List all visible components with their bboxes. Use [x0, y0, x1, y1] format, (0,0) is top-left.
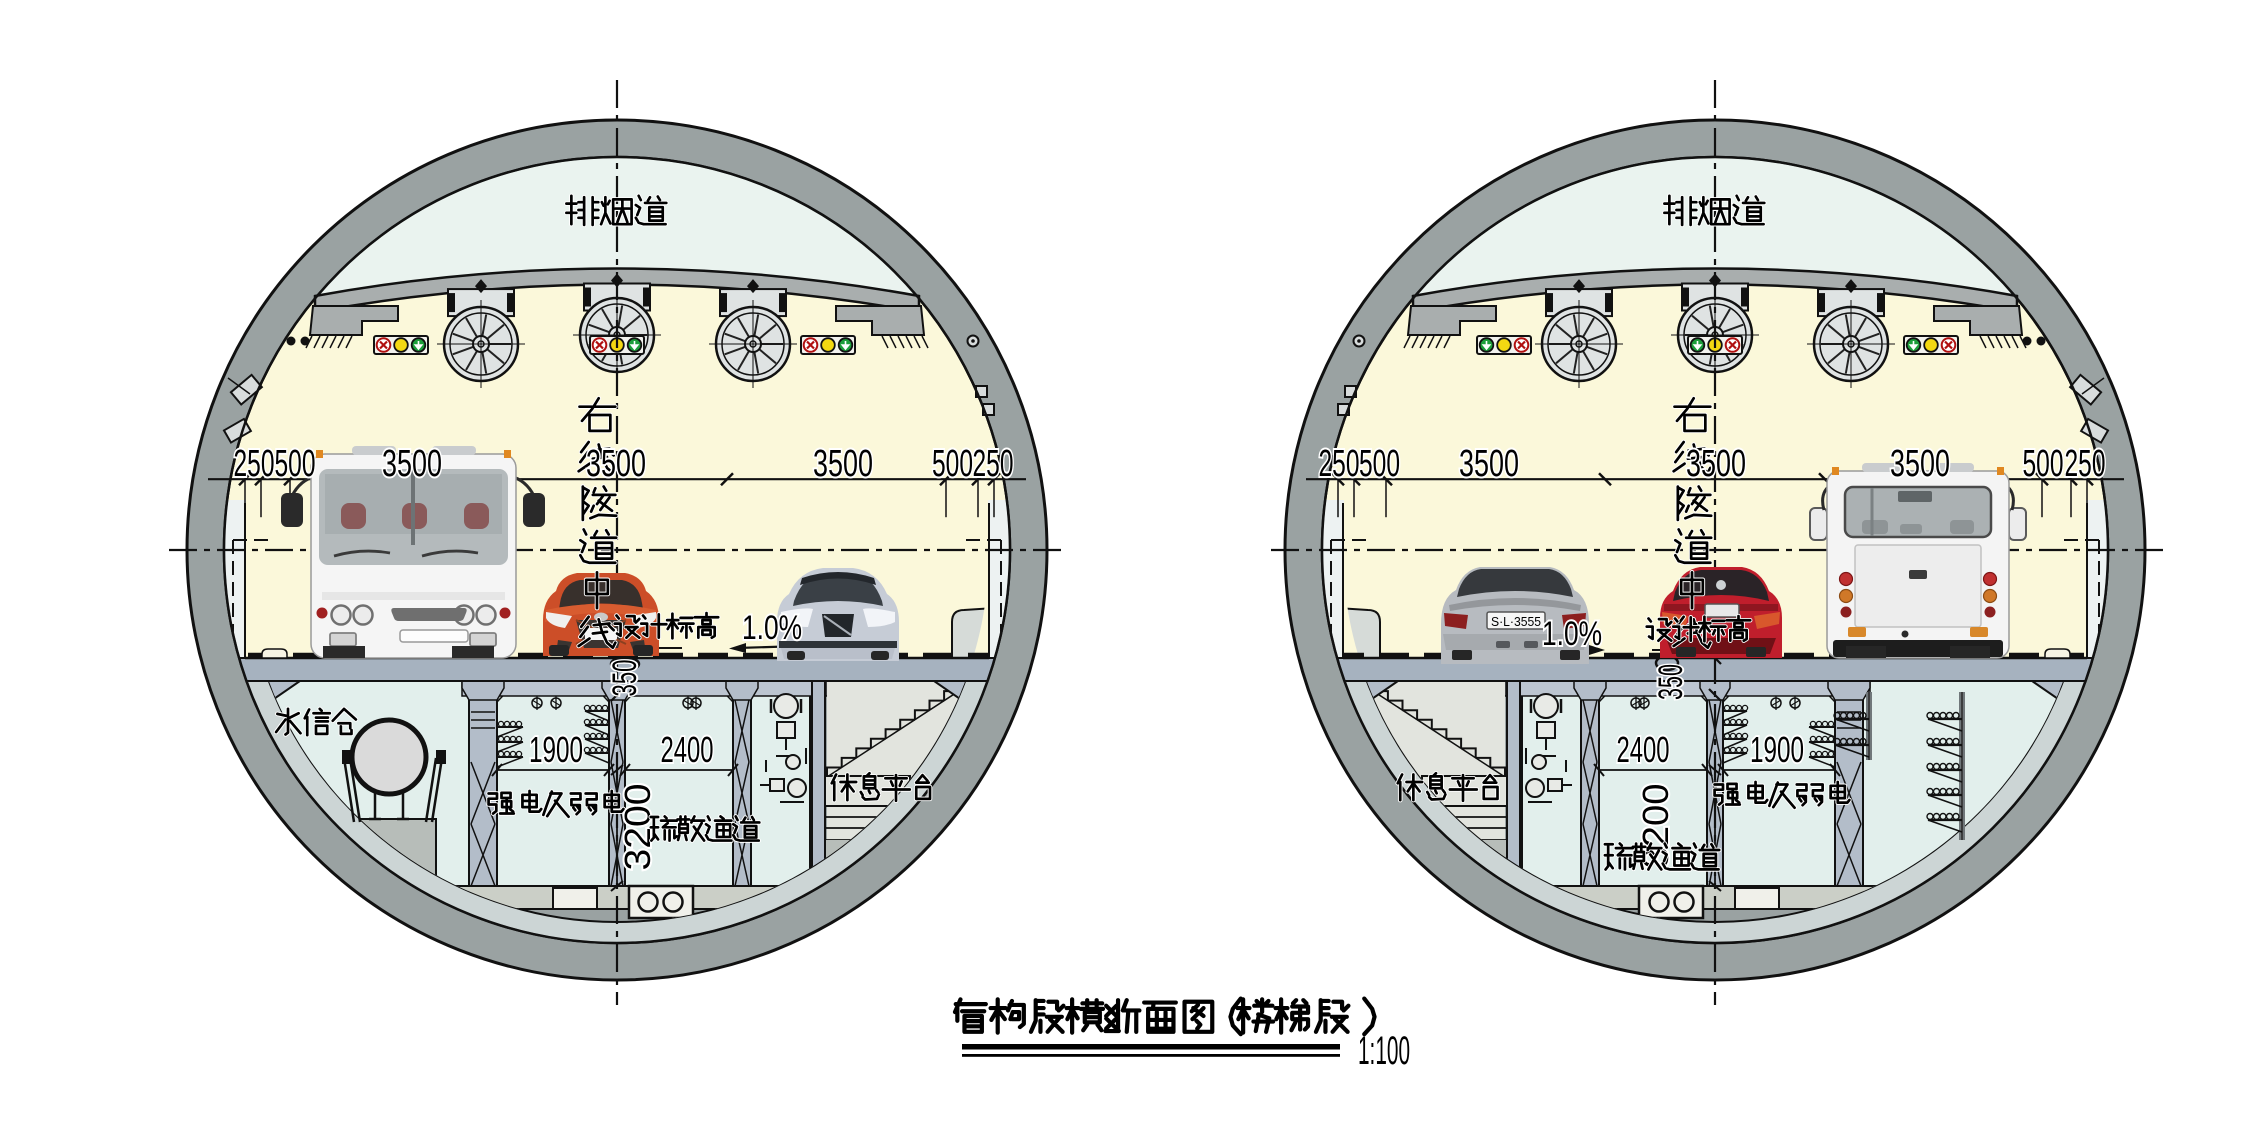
- svg-text:1:100: 1:100: [1358, 1029, 1410, 1073]
- svg-text:S·L·3555: S·L·3555: [1491, 614, 1541, 629]
- svg-text:500: 500: [932, 443, 973, 485]
- svg-text:2400: 2400: [661, 729, 714, 770]
- svg-text:2400: 2400: [1617, 729, 1670, 770]
- svg-text:3500: 3500: [813, 443, 873, 485]
- svg-text:1.0%: 1.0%: [1542, 615, 1602, 653]
- svg-text:500: 500: [1359, 443, 1400, 485]
- svg-text:500: 500: [275, 443, 316, 485]
- svg-text:500: 500: [2023, 443, 2064, 485]
- svg-text:1900: 1900: [529, 729, 583, 770]
- svg-text:3500: 3500: [1890, 443, 1950, 485]
- svg-text:250: 250: [1319, 443, 1360, 485]
- svg-text:250: 250: [973, 443, 1014, 485]
- svg-text:350: 350: [606, 660, 644, 697]
- svg-text:1.0%: 1.0%: [742, 609, 802, 647]
- svg-text:250: 250: [234, 443, 275, 485]
- svg-text:1900: 1900: [1750, 729, 1804, 770]
- svg-text:3500: 3500: [586, 443, 646, 485]
- svg-text:3500: 3500: [1686, 443, 1746, 485]
- svg-text:3500: 3500: [1459, 443, 1519, 485]
- svg-text:350: 350: [1652, 664, 1690, 700]
- svg-text:250: 250: [2065, 443, 2106, 485]
- svg-text:3500: 3500: [382, 443, 442, 485]
